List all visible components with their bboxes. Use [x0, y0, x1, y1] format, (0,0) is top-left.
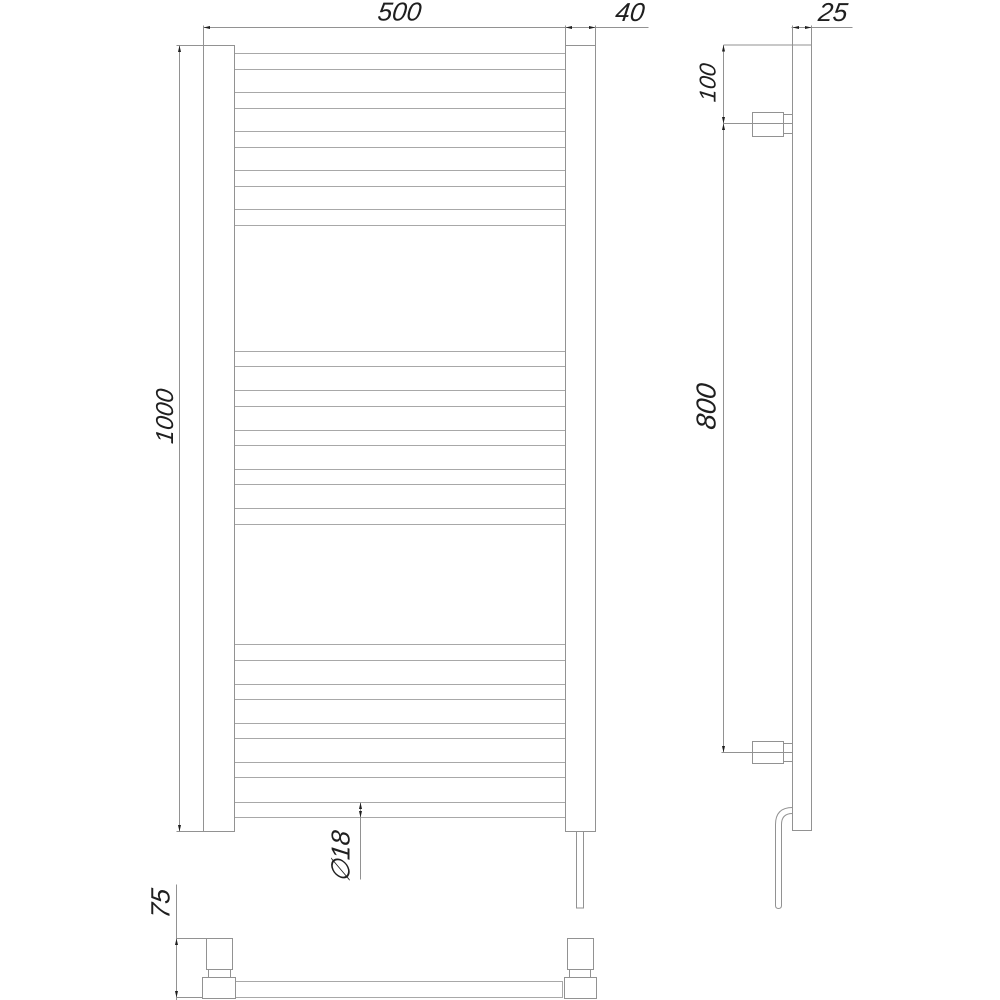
svg-text:800: 800	[691, 381, 722, 431]
svg-text:100: 100	[695, 62, 721, 104]
svg-text:25: 25	[816, 0, 850, 27]
svg-text:40: 40	[614, 0, 647, 27]
svg-text:1000: 1000	[152, 387, 179, 445]
svg-text:75: 75	[146, 887, 176, 920]
svg-text:500: 500	[376, 0, 424, 26]
svg-text:∅18: ∅18	[326, 828, 356, 884]
